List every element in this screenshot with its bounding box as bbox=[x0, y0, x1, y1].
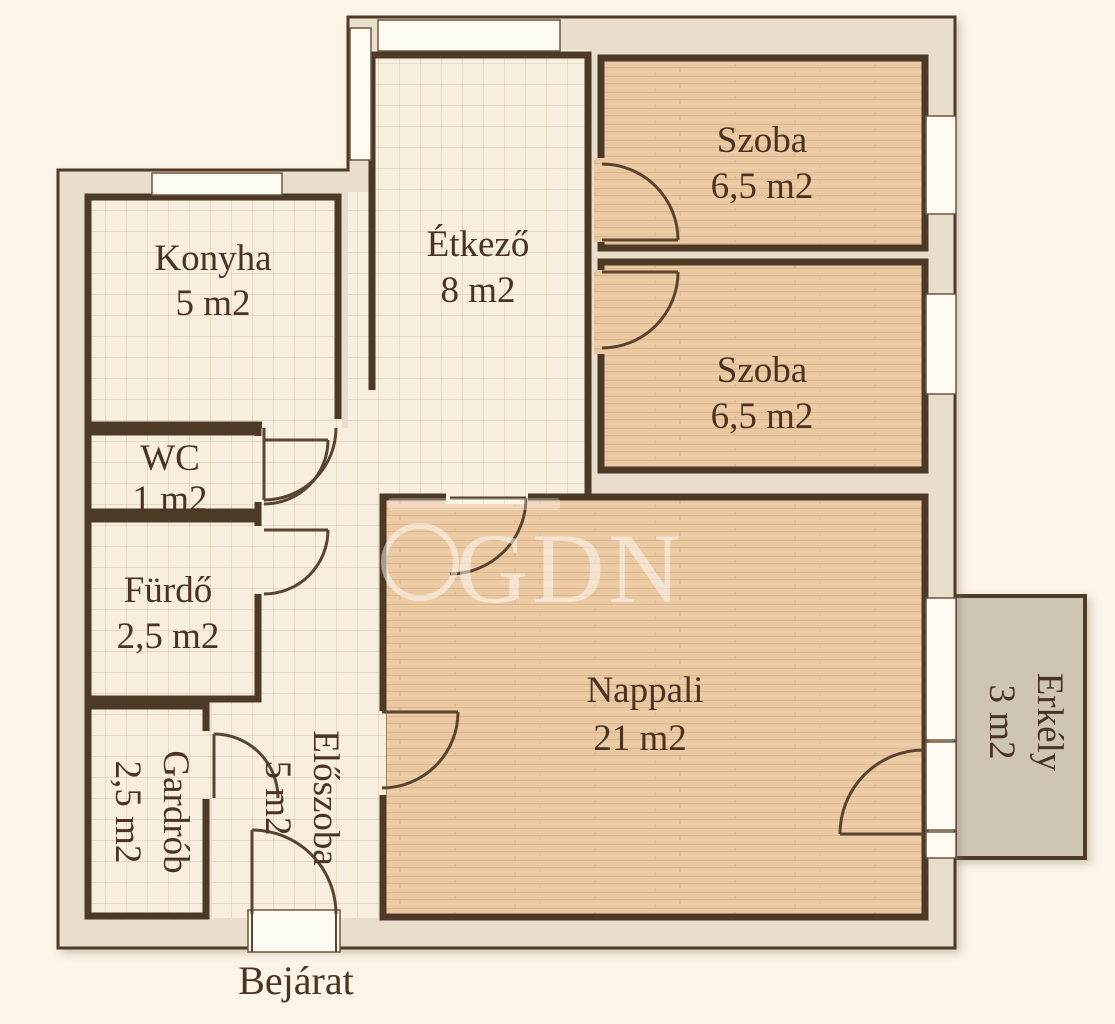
room-area-szoba1: 6,5 m2 bbox=[711, 166, 814, 207]
room-area-furdo: 2,5 m2 bbox=[117, 616, 220, 657]
room-area-gardrob: 2,5 m2 bbox=[107, 761, 148, 864]
window-bedroom-1 bbox=[926, 116, 956, 214]
room-label-eloszoba: Előszoba bbox=[305, 730, 346, 866]
room-label-erkely: Erkély bbox=[1029, 673, 1070, 772]
window-hall bbox=[350, 28, 371, 160]
room-area-eloszoba: 5 m2 bbox=[257, 760, 298, 835]
watermark-bar bbox=[388, 498, 560, 510]
room-label-gardrob: Gardrób bbox=[155, 750, 196, 873]
window-living-lower bbox=[926, 832, 956, 858]
door-gap-wc bbox=[254, 436, 270, 502]
door-gap-wardrobe bbox=[202, 731, 218, 799]
window-dining bbox=[378, 20, 560, 51]
room-label-nappali: Nappali bbox=[586, 670, 703, 711]
floorplan-page: Konyha 5 m2 WC 1 m2 Fürdő 2,5 m2 Gardrób… bbox=[0, 0, 1115, 1024]
floorplan-svg: Konyha 5 m2 WC 1 m2 Fürdő 2,5 m2 Gardrób… bbox=[0, 0, 1115, 1024]
watermark-text: GDN bbox=[456, 513, 685, 624]
window-bedroom-2 bbox=[926, 294, 956, 394]
door-gap-bedroom-2 bbox=[594, 270, 608, 354]
room-label-wc: WC bbox=[140, 438, 200, 479]
door-gap-bathroom bbox=[254, 526, 270, 594]
door-gap-bedroom-1 bbox=[594, 158, 608, 242]
room-label-szoba2: Szoba bbox=[717, 350, 807, 391]
room-area-konyha: 5 m2 bbox=[175, 283, 250, 324]
room-area-szoba2: 6,5 m2 bbox=[711, 396, 814, 437]
entrance-label: Bejárat bbox=[238, 958, 354, 1003]
room-label-konyha: Konyha bbox=[154, 238, 271, 279]
room-label-furdo: Fürdő bbox=[124, 570, 212, 611]
balcony-door-opening bbox=[926, 742, 956, 830]
room-area-erkely: 3 m2 bbox=[981, 684, 1022, 759]
room-area-nappali: 21 m2 bbox=[593, 718, 687, 759]
room-label-etkezo: Étkező bbox=[427, 223, 530, 265]
room-label-szoba1: Szoba bbox=[717, 120, 807, 161]
window-kitchen bbox=[152, 173, 282, 195]
door-gap-kitchen bbox=[262, 419, 342, 433]
door-gap-hall-living bbox=[369, 711, 386, 795]
room-area-etkezo: 8 m2 bbox=[440, 270, 515, 311]
room-area-wc: 1 m2 bbox=[132, 479, 207, 520]
window-living-upper bbox=[926, 598, 956, 740]
entrance-opening bbox=[248, 910, 340, 952]
